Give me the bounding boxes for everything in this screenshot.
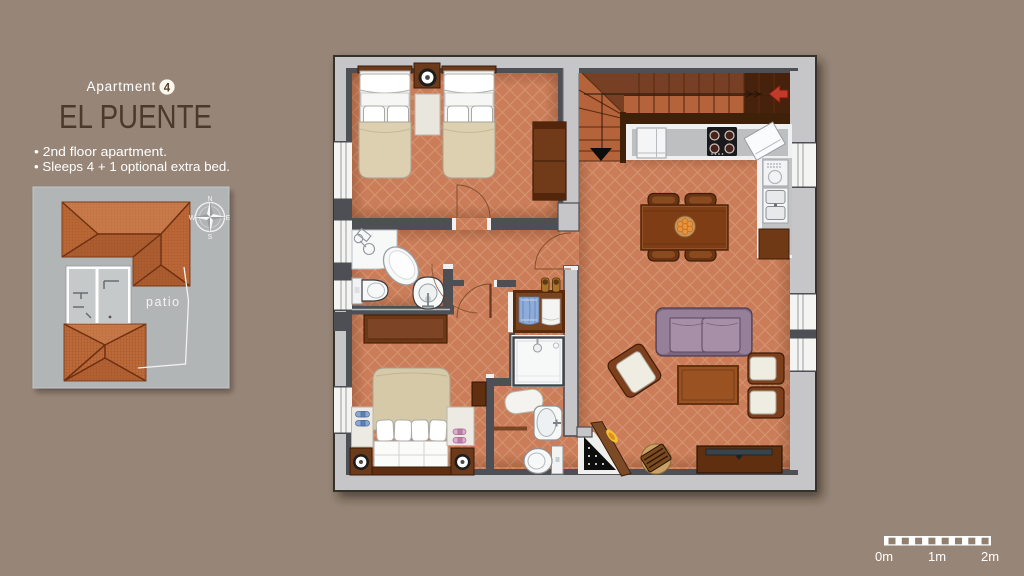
svg-text:0m: 0m [875, 549, 893, 564]
svg-text:patio: patio [146, 295, 181, 309]
svg-text:4: 4 [164, 83, 171, 95]
svg-text:EL PUENTE: EL PUENTE [59, 98, 212, 135]
svg-text:• 2nd floor apartment.: • 2nd floor apartment. [34, 144, 167, 159]
svg-text:2m: 2m [981, 549, 999, 564]
svg-text:Apartment: Apartment [87, 79, 156, 94]
svg-text:W: W [189, 215, 196, 222]
svg-text:E: E [226, 215, 231, 222]
svg-text:N: N [207, 196, 212, 203]
svg-text:• Sleeps 4 + 1 optional extra: • Sleeps 4 + 1 optional extra bed. [34, 159, 230, 174]
svg-text:S: S [208, 234, 213, 241]
svg-text:1m: 1m [928, 549, 946, 564]
